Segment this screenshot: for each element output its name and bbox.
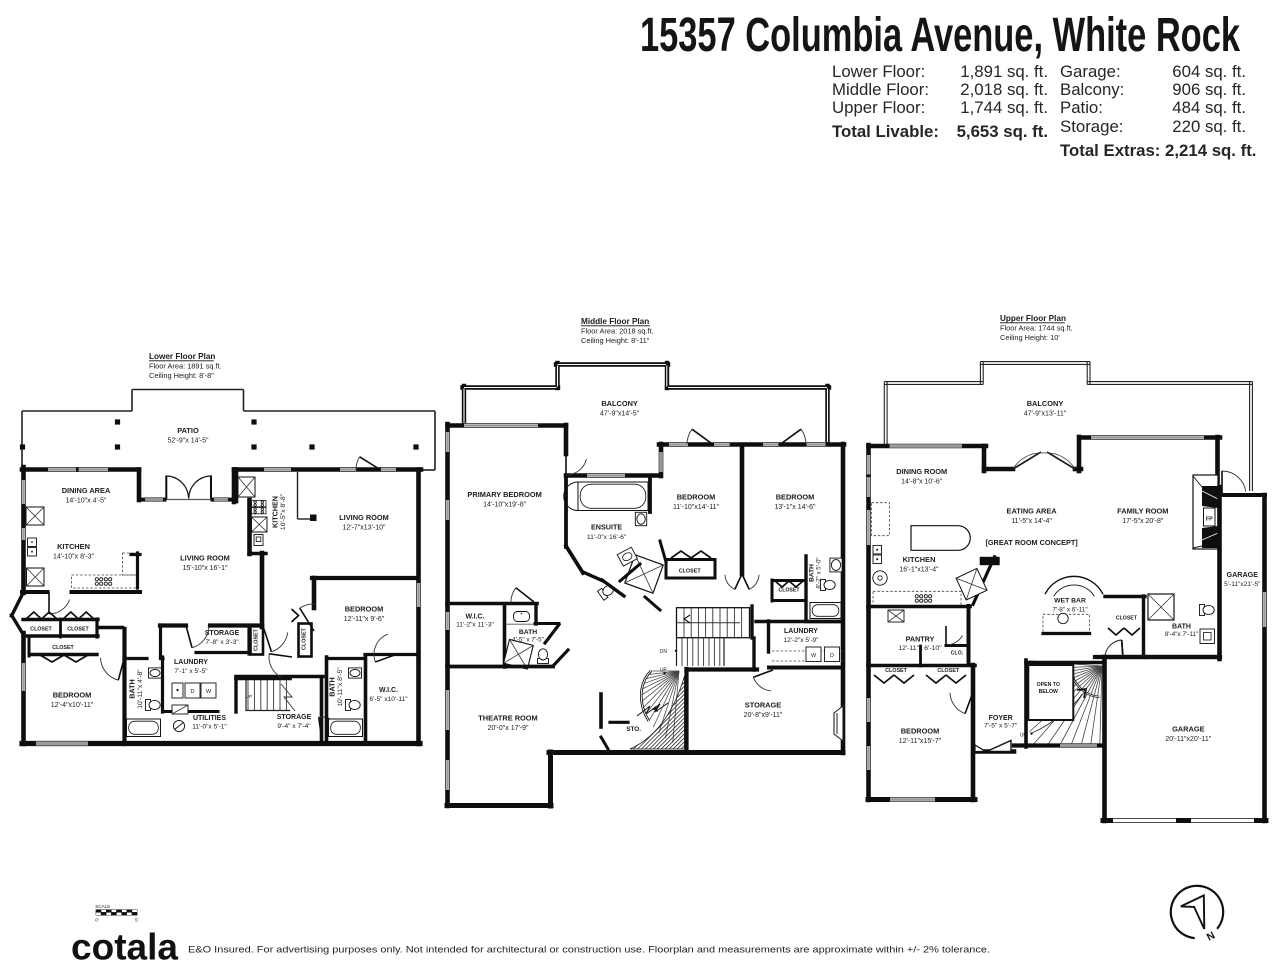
svg-text:Total Livable:: Total Livable:: [832, 122, 939, 141]
svg-text:DINING AREA: DINING AREA: [62, 486, 111, 495]
svg-text:7'-5" x 5'-7": 7'-5" x 5'-7": [984, 723, 1018, 730]
svg-text:BEDROOM: BEDROOM: [53, 691, 92, 700]
svg-text:FOYER: FOYER: [989, 715, 1013, 722]
svg-text:BELOW: BELOW: [1039, 689, 1058, 695]
svg-text:SCALE: SCALE: [95, 904, 110, 909]
svg-text:BALCONY: BALCONY: [1027, 399, 1064, 408]
svg-text:BATH: BATH: [328, 677, 337, 696]
svg-text:CLOSET: CLOSET: [1116, 616, 1138, 622]
svg-text:Storage:: Storage:: [1060, 117, 1123, 136]
svg-text:KITCHEN: KITCHEN: [903, 555, 936, 564]
svg-text:47'-9"x13'-11": 47'-9"x13'-11": [1024, 410, 1067, 417]
svg-text:CLOSET: CLOSET: [302, 627, 308, 650]
svg-text:LIVING ROOM: LIVING ROOM: [339, 513, 389, 522]
svg-text:12'-7"x13'-10": 12'-7"x13'-10": [342, 524, 386, 531]
svg-text:WET BAR: WET BAR: [1054, 598, 1086, 605]
svg-text:EATING AREA: EATING AREA: [1007, 507, 1058, 516]
svg-text:W: W: [206, 689, 212, 695]
svg-text:484 sq. ft.: 484 sq. ft.: [1172, 98, 1246, 117]
svg-text:STORAGE: STORAGE: [205, 630, 240, 637]
svg-text:2,018 sq. ft.: 2,018 sq. ft.: [960, 80, 1048, 99]
svg-text:20'-0"x 17'-9": 20'-0"x 17'-9": [487, 725, 529, 732]
svg-text:15'-10"x 16'-1": 15'-10"x 16'-1": [182, 565, 228, 572]
svg-text:Garage:: Garage:: [1060, 62, 1121, 81]
svg-text:DINING ROOM: DINING ROOM: [896, 467, 947, 476]
svg-text:BATH: BATH: [809, 564, 816, 582]
svg-text:11'-5"x 14'-4": 11'-5"x 14'-4": [1011, 518, 1052, 525]
svg-text:[GREAT ROOM CONCEPT]: [GREAT ROOM CONCEPT]: [985, 538, 1078, 547]
svg-text:UP: UP: [246, 694, 253, 700]
svg-text:Middle Floor Plan: Middle Floor Plan: [581, 317, 649, 326]
svg-text:Upper Floor Plan: Upper Floor Plan: [1000, 314, 1066, 323]
svg-text:220 sq. ft.: 220 sq. ft.: [1172, 117, 1246, 136]
svg-text:CLOSET: CLOSET: [679, 569, 702, 575]
svg-text:52'-9"x 14'-5": 52'-9"x 14'-5": [167, 437, 209, 444]
svg-text:11'-0"x 16'-6": 11'-0"x 16'-6": [587, 534, 627, 541]
svg-text:Balcony:: Balcony:: [1060, 80, 1124, 99]
svg-text:BEDROOM: BEDROOM: [776, 493, 815, 502]
svg-text:5,653 sq. ft.: 5,653 sq. ft.: [957, 122, 1048, 141]
svg-text:12'-2"x 5'-9": 12'-2"x 5'-9": [783, 637, 819, 644]
svg-text:0': 0': [95, 918, 99, 924]
svg-text:11'-2"x 11'-3": 11'-2"x 11'-3": [456, 622, 494, 629]
svg-text:Ceiling Height: 10': Ceiling Height: 10': [1000, 333, 1060, 342]
svg-text:12'-11"x15'-7": 12'-11"x15'-7": [899, 738, 942, 745]
svg-text:OPEN TO: OPEN TO: [1037, 682, 1060, 688]
svg-text:20'-11"x20'-11": 20'-11"x20'-11": [1165, 736, 1211, 743]
svg-text:CLOSET: CLOSET: [30, 627, 52, 633]
svg-text:11'-10"x14'-11": 11'-10"x14'-11": [673, 504, 719, 511]
svg-text:GARAGE: GARAGE: [1172, 725, 1205, 734]
svg-text:9'-4" x 7'-4": 9'-4" x 7'-4": [277, 723, 311, 730]
svg-text:GARAGE: GARAGE: [1227, 570, 1259, 579]
svg-text:15357 Columbia Avenue, White R: 15357 Columbia Avenue, White Rock: [640, 9, 1240, 62]
svg-text:W.I.C.: W.I.C.: [379, 687, 398, 694]
svg-text:STORAGE: STORAGE: [745, 701, 781, 710]
svg-text:20'-8"x9'-11": 20'-8"x9'-11": [744, 712, 783, 719]
svg-text:FP: FP: [1206, 517, 1213, 523]
svg-text:CLOSET: CLOSET: [67, 627, 89, 633]
svg-text:cotala: cotala: [71, 927, 178, 960]
svg-text:5': 5': [135, 918, 139, 924]
svg-text:8'-4"x 7'-11": 8'-4"x 7'-11": [1165, 631, 1199, 638]
svg-text:D: D: [190, 689, 194, 695]
svg-text:BEDROOM: BEDROOM: [345, 605, 384, 614]
svg-text:Total Extras: 2,214 sq. ft.: Total Extras: 2,214 sq. ft.: [1060, 141, 1256, 160]
svg-text:Floor Area: 2018 sq.ft.: Floor Area: 2018 sq.ft.: [581, 327, 654, 336]
svg-text:LAUNDRY: LAUNDRY: [174, 659, 208, 666]
svg-text:Ceiling Height: 8'-8": Ceiling Height: 8'-8": [149, 371, 214, 380]
svg-text:13'-1"x 14'-6": 13'-1"x 14'-6": [774, 504, 816, 511]
svg-text:D: D: [830, 653, 834, 659]
svg-text:FAMILY ROOM: FAMILY ROOM: [1117, 507, 1168, 516]
svg-text:STORAGE: STORAGE: [277, 714, 312, 721]
svg-text:PANTRY: PANTRY: [906, 635, 935, 644]
svg-text:7'-1" x 5'-5": 7'-1" x 5'-5": [174, 668, 208, 675]
svg-text:Ceiling Height: 8'-11": Ceiling Height: 8'-11": [581, 336, 650, 345]
svg-text:LAUNDRY: LAUNDRY: [784, 628, 818, 635]
svg-text:Floor Area: 1891 sq.ft.: Floor Area: 1891 sq.ft.: [149, 362, 222, 371]
svg-text:CLOSET: CLOSET: [778, 588, 800, 594]
svg-text:CLOSET: CLOSET: [937, 668, 960, 674]
svg-text:W.I.C.: W.I.C.: [465, 614, 484, 621]
svg-text:KITCHEN: KITCHEN: [271, 496, 280, 528]
svg-text:10'-11"x 4'-8": 10'-11"x 4'-8": [137, 669, 144, 709]
svg-text:CLOSET: CLOSET: [254, 628, 260, 651]
svg-text:47'-9"x14'-5": 47'-9"x14'-5": [600, 410, 640, 417]
svg-text:ENSUITE: ENSUITE: [591, 523, 622, 532]
svg-text:BEDROOM: BEDROOM: [677, 493, 716, 502]
svg-text:Floor Area: 1744 sq.ft.: Floor Area: 1744 sq.ft.: [1000, 324, 1073, 333]
svg-text:CLOSET: CLOSET: [52, 645, 74, 651]
svg-text:BATH: BATH: [128, 679, 137, 698]
svg-text:14'-10"x 4'-5": 14'-10"x 4'-5": [65, 497, 107, 504]
svg-text:THEATRE ROOM: THEATRE ROOM: [478, 714, 537, 723]
svg-text:604 sq. ft.: 604 sq. ft.: [1172, 62, 1246, 81]
svg-text:14'-10"x 8'-3": 14'-10"x 8'-3": [53, 553, 95, 560]
svg-text:Lower Floor:: Lower Floor:: [832, 62, 925, 81]
svg-text:BATH: BATH: [519, 629, 537, 636]
svg-text:7'-8" x 3'-3": 7'-8" x 3'-3": [205, 639, 239, 646]
svg-text:7'-8" x 6'-11": 7'-8" x 6'-11": [1052, 606, 1087, 613]
svg-text:17'-5"x 20'-8": 17'-5"x 20'-8": [1122, 518, 1164, 525]
svg-text:906 sq. ft.: 906 sq. ft.: [1172, 80, 1246, 99]
svg-text:Middle Floor:: Middle Floor:: [832, 80, 929, 99]
svg-text:10'-5"x 8'-8": 10'-5"x 8'-8": [280, 493, 287, 530]
svg-text:E&O Insured. For advertising p: E&O Insured. For advertising purposes on…: [188, 945, 990, 955]
svg-text:CLO.: CLO.: [951, 651, 964, 657]
svg-text:Upper Floor:: Upper Floor:: [832, 98, 925, 117]
svg-text:KITCHEN: KITCHEN: [57, 542, 90, 551]
svg-text:5'-11"x21'-5": 5'-11"x21'-5": [1224, 581, 1261, 588]
svg-text:PATIO: PATIO: [177, 426, 199, 435]
svg-text:11'-0"x 5'-1": 11'-0"x 5'-1": [192, 724, 227, 731]
svg-text:1,744 sq. ft.: 1,744 sq. ft.: [960, 98, 1048, 117]
svg-text:DN: DN: [660, 649, 668, 655]
svg-text:14'-10"x19'-8": 14'-10"x19'-8": [483, 501, 527, 508]
svg-text:1,891 sq. ft.: 1,891 sq. ft.: [960, 62, 1048, 81]
svg-text:12'-11"x 9'-6": 12'-11"x 9'-6": [344, 616, 385, 623]
svg-text:12'-4"x10'-11": 12'-4"x10'-11": [51, 702, 94, 709]
svg-text:10'-11"x 8'-5": 10'-11"x 8'-5": [337, 667, 344, 707]
svg-text:UTILITIES: UTILITIES: [193, 715, 226, 722]
svg-text:PRIMARY BEDROOM: PRIMARY BEDROOM: [467, 490, 541, 499]
svg-text:LIVING ROOM: LIVING ROOM: [180, 554, 230, 563]
svg-text:BALCONY: BALCONY: [601, 399, 638, 408]
svg-text:16'-1"x13'-4": 16'-1"x13'-4": [899, 566, 939, 573]
svg-text:6'-5" x10'-11": 6'-5" x10'-11": [369, 696, 408, 703]
svg-text:Patio:: Patio:: [1060, 98, 1103, 117]
svg-text:CLOSET: CLOSET: [885, 668, 908, 674]
svg-text:BEDROOM: BEDROOM: [901, 727, 940, 736]
svg-text:14'-8"x 10'-6": 14'-8"x 10'-6": [901, 478, 943, 485]
svg-text:Lower Floor Plan: Lower Floor Plan: [149, 352, 215, 361]
svg-text:STO.: STO.: [626, 726, 641, 733]
svg-text:BATH: BATH: [1172, 624, 1191, 631]
